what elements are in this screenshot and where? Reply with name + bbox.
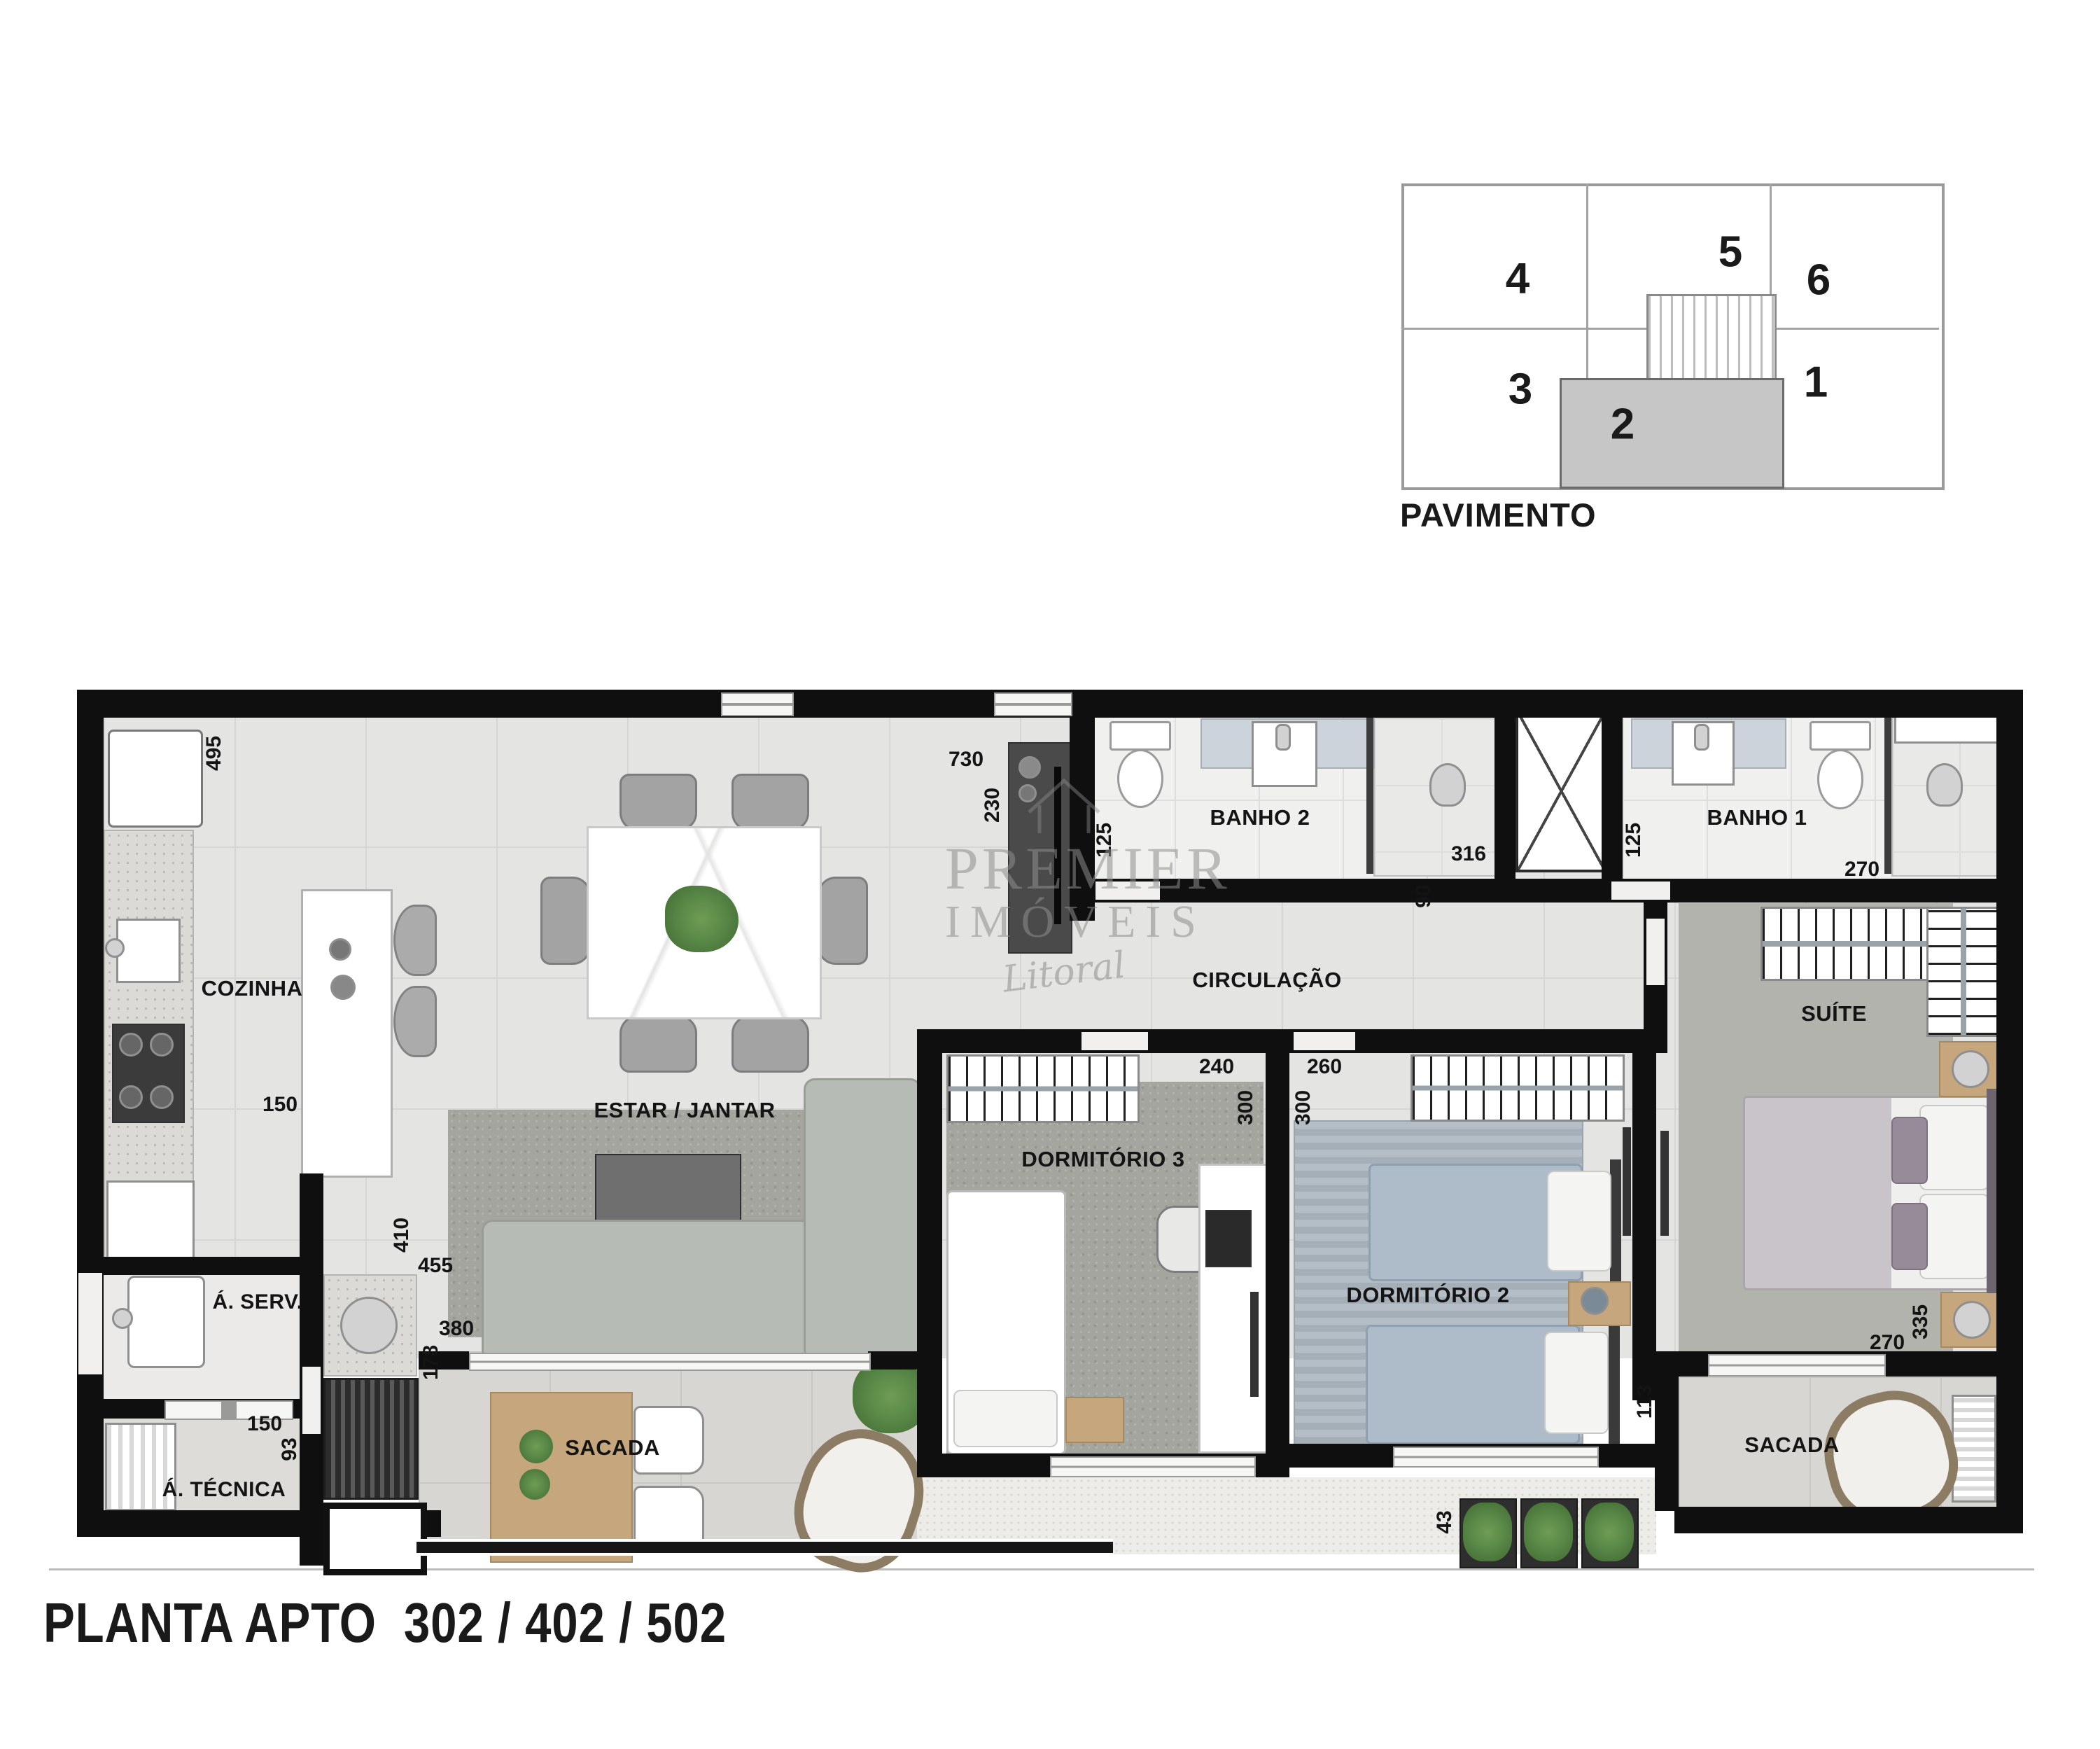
dim-240: 240 [1199, 1055, 1234, 1079]
balcony-railing [416, 1539, 1113, 1556]
sofa-chaise [804, 1078, 921, 1361]
window-top-2 [994, 692, 1072, 716]
key-plan-unit-2: 2 [1611, 400, 1634, 450]
dorm3-pillow [953, 1390, 1058, 1447]
wall-dorm3-dorm2 [1266, 1029, 1289, 1477]
wall-sacada-suite-bottom [1674, 1507, 2023, 1533]
key-plan-unit-3: 3 [1508, 365, 1532, 414]
wall-corridor-bottom [917, 1029, 1667, 1053]
wall-dorm3-left [917, 1029, 942, 1477]
dorm2-headboard-1 [1610, 1159, 1621, 1281]
table-plant [519, 1430, 553, 1463]
dorm2-wardrobe [1410, 1054, 1625, 1122]
dorm2-pillow-1 [1547, 1171, 1611, 1271]
burner [119, 1033, 143, 1057]
label-area-servico: Á. SERV. [212, 1290, 302, 1314]
banho2-shower-head [1429, 763, 1466, 807]
dim-90: 90 [1412, 884, 1436, 907]
ac-condenser [1952, 1395, 1996, 1503]
laundry-tank [127, 1276, 205, 1368]
dining-chair [540, 877, 591, 965]
dim-316: 316 [1451, 842, 1486, 866]
dim-93: 93 [278, 1437, 302, 1461]
key-plan-unit-5: 5 [1718, 228, 1742, 277]
dorm3-nightstand [1065, 1397, 1124, 1443]
fridge [108, 730, 203, 828]
label-sacada-estar: SACADA [565, 1435, 660, 1461]
servico-passage [302, 1367, 321, 1434]
label-suite: SUÍTE [1801, 1001, 1867, 1026]
elevator-shaft [1515, 710, 1607, 872]
dorm3-door [1081, 1032, 1148, 1050]
dim-230: 230 [981, 788, 1004, 823]
banho2-faucet [1275, 724, 1291, 751]
grill-cabinet [323, 1503, 427, 1575]
dim-335: 335 [1909, 1304, 1933, 1339]
charcoal-grill [323, 1378, 419, 1500]
dim-300-dorm2: 300 [1291, 1090, 1315, 1125]
dim-178: 178 [419, 1345, 443, 1380]
washer [106, 1180, 195, 1259]
dining-chair [619, 1015, 697, 1073]
suite-throw-pillow [1891, 1203, 1928, 1270]
kitchen-faucet [105, 938, 125, 958]
suite-throw-pillow [1891, 1117, 1928, 1184]
burner [119, 1085, 143, 1109]
dorm2-headboard-2 [1609, 1322, 1620, 1444]
dim-150-cozinha: 150 [262, 1093, 297, 1117]
label-estar-jantar: ESTAR / JANTAR [594, 1098, 775, 1123]
key-plan-unit-6: 6 [1807, 256, 1830, 305]
suite-closet-top [1760, 907, 1933, 981]
kitchen-sink [116, 919, 181, 983]
elevator-wall [1602, 690, 1623, 879]
dining-chair [619, 774, 697, 831]
servico-door-opening [78, 1273, 102, 1374]
label-banho2: BANHO 2 [1210, 805, 1310, 830]
key-plan-unit-1: 1 [1804, 358, 1828, 407]
label-circulacao: CIRCULAÇÃO [1192, 968, 1341, 993]
grill-sink [340, 1297, 398, 1354]
dorm2-pillow-2 [1544, 1332, 1609, 1434]
label-sacada-suite: SACADA [1744, 1433, 1840, 1458]
suite-tv [1660, 1131, 1669, 1236]
suite-balcony-door [1708, 1354, 1886, 1377]
dim-455: 455 [418, 1254, 453, 1278]
toilet-bowl [1817, 749, 1863, 809]
dining-chair [731, 1015, 809, 1073]
sofa-seat [482, 1220, 812, 1361]
planter-plant [1585, 1503, 1634, 1561]
label-area-tecnica: Á. TÉCNICA [162, 1478, 286, 1502]
suite-lamp-1 [1952, 1050, 1989, 1088]
banho1-shower-wall [1884, 716, 1891, 874]
label-cozinha: COZINHA [202, 976, 303, 1001]
burner [150, 1085, 174, 1109]
tv-rack [1008, 742, 1072, 954]
dorm2-tv [1623, 1127, 1631, 1236]
key-plan-core [1646, 294, 1777, 389]
estar-balcony-door [469, 1353, 871, 1371]
burner [150, 1033, 174, 1057]
kitchen-island [301, 889, 393, 1178]
balcony-table [490, 1392, 633, 1563]
label-banho1: BANHO 1 [1707, 805, 1807, 830]
banho1-faucet [1694, 724, 1709, 751]
table-centerpiece-plant [665, 886, 738, 952]
toilet [1809, 721, 1871, 751]
wall-dorm2-right [1632, 1029, 1656, 1400]
dim-125-banho2: 125 [1093, 823, 1116, 858]
island-sink [329, 938, 351, 961]
dorm3-window [1050, 1456, 1256, 1477]
dorm2-window [1393, 1447, 1599, 1468]
window-top-1 [721, 692, 794, 716]
banho2-shower-wall [1366, 716, 1373, 874]
tv-decor [1018, 756, 1041, 779]
suite-door [1646, 919, 1665, 985]
banho2-door [1095, 882, 1160, 900]
toilet-bowl [1117, 749, 1163, 808]
label-dormitorio3: DORMITÓRIO 3 [1021, 1147, 1184, 1172]
dorm2-door [1294, 1032, 1355, 1050]
suite-lamp-2 [1953, 1301, 1991, 1339]
key-plan-caption: PAVIMENTO [1400, 496, 1597, 534]
dim-43: 43 [1433, 1510, 1457, 1533]
dim-495: 495 [202, 736, 226, 771]
dorm3-tv [1250, 1292, 1259, 1397]
stool [393, 986, 437, 1057]
dining-chair [818, 877, 868, 965]
tv-decor [1018, 784, 1037, 802]
label-dormitorio2: DORMITÓRIO 2 [1346, 1283, 1509, 1308]
dorm3-wardrobe [946, 1054, 1140, 1123]
tv-screen [1054, 767, 1061, 924]
tank-faucet [112, 1308, 133, 1329]
dim-125-banho1: 125 [1622, 823, 1646, 858]
planter-plant [1463, 1503, 1512, 1561]
wall-right [1996, 690, 2023, 1533]
laptop [1205, 1210, 1252, 1267]
banho1-shower-head [1926, 763, 1963, 807]
wall-estar-sacada-right [868, 1351, 917, 1370]
dim-113: 113 [1633, 1385, 1657, 1419]
wall-sacada-suite-left [1655, 1400, 1679, 1511]
key-plan-unit-4: 4 [1506, 254, 1529, 304]
key-plan-unit-2-highlight [1560, 378, 1784, 489]
dim-410: 410 [390, 1218, 414, 1253]
planter-plant [1524, 1503, 1573, 1561]
suite-pillow [1919, 1105, 1989, 1190]
dim-270-banho1: 270 [1844, 858, 1879, 882]
wall-servico-top [77, 1257, 302, 1275]
suite-pillow [1919, 1194, 1989, 1279]
dim-380: 380 [439, 1317, 474, 1341]
floor-plan-sheet: 4 5 6 3 2 1 PAVIMENTO [0, 0, 2100, 1749]
dining-chair [731, 774, 809, 831]
stool [393, 905, 437, 976]
dorm2-lamp [1581, 1287, 1609, 1315]
dim-300-dorm3: 300 [1234, 1090, 1258, 1125]
table-plant [519, 1469, 550, 1500]
banho1-door [1611, 882, 1670, 900]
toilet [1109, 721, 1171, 751]
dim-150-servico: 150 [247, 1412, 282, 1436]
dim-730: 730 [948, 748, 983, 772]
elevator-wall [1494, 690, 1515, 879]
dim-270-suite: 270 [1870, 1331, 1905, 1355]
island-faucet [330, 975, 356, 1000]
suite-closet-right [1926, 907, 2001, 1037]
dim-260: 260 [1307, 1055, 1342, 1079]
sheet-title: PLANTA APTO 302 / 402 / 502 [43, 1591, 727, 1655]
